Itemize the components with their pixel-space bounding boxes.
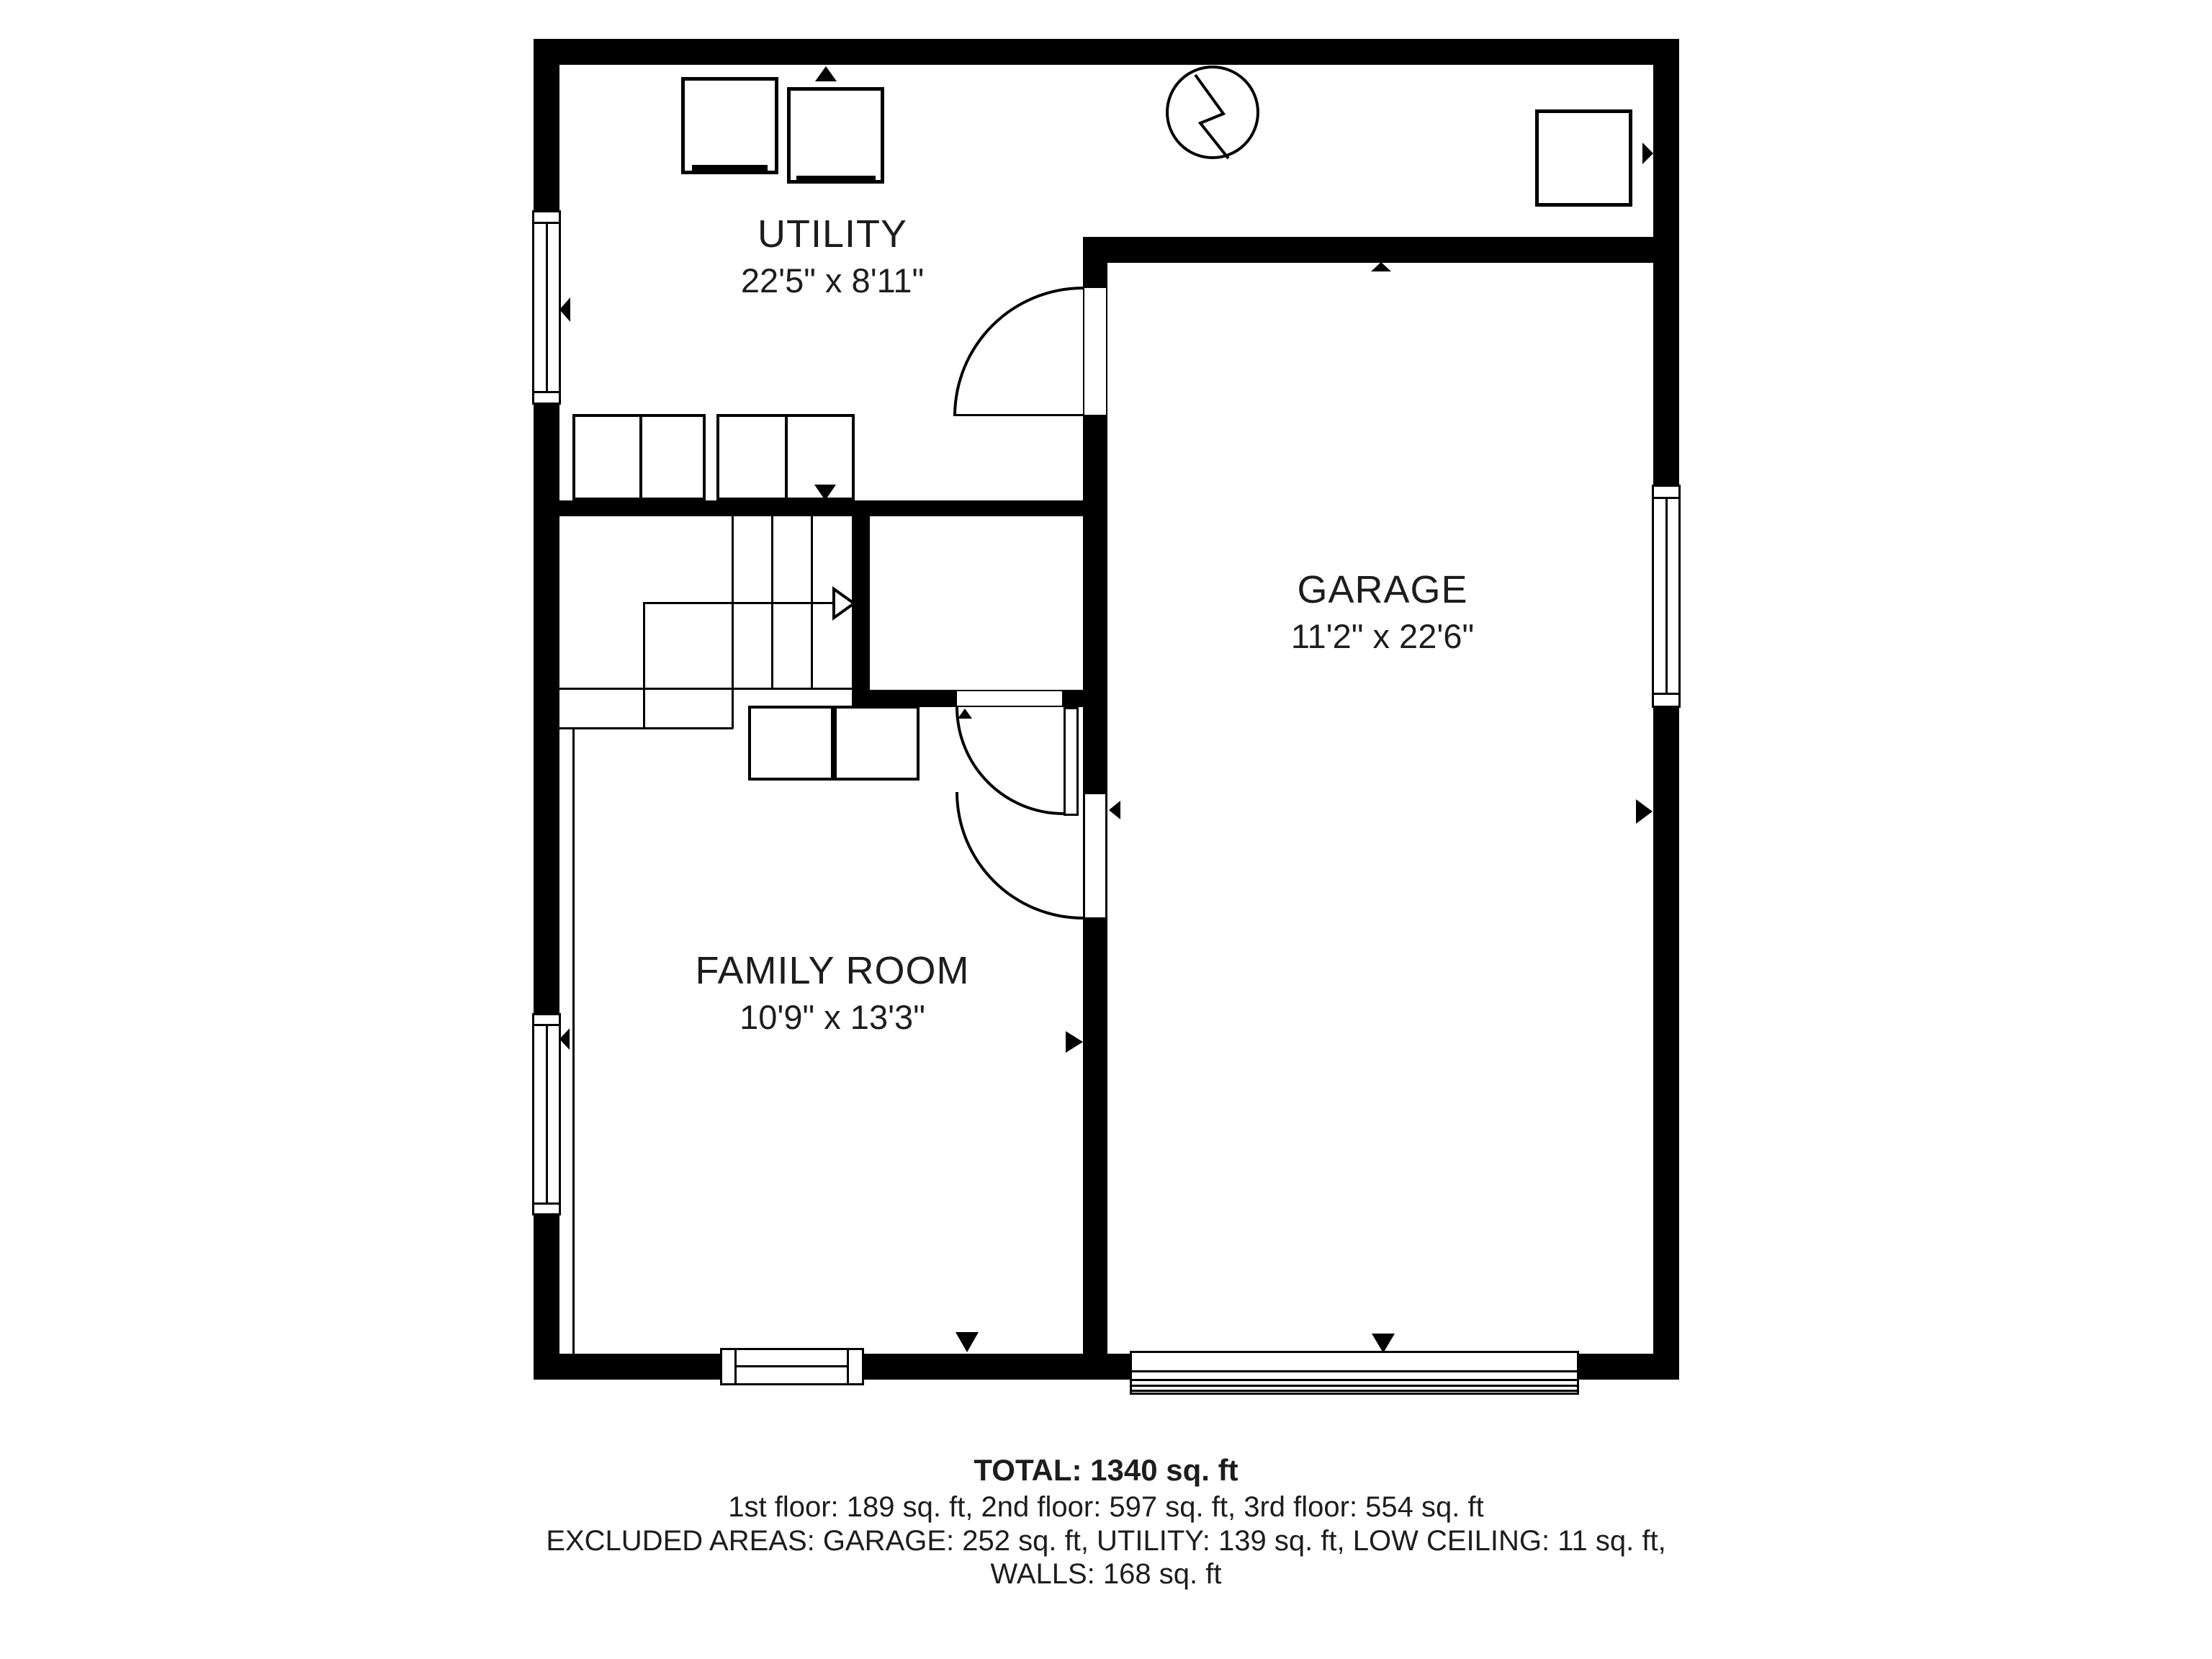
family-room-label: FAMILY ROOM <box>695 949 969 992</box>
marker-family-door-icon <box>958 709 972 719</box>
door-hall-family-opening <box>956 690 1064 707</box>
stair-arrowhead-icon <box>834 589 854 618</box>
marker-garage-right-icon <box>1636 799 1653 824</box>
stair-winder-divider <box>643 603 645 729</box>
marker-garage-top-icon <box>1371 262 1391 271</box>
washer-door-line <box>692 165 768 171</box>
wall-hall-bottom-right <box>1064 690 1083 707</box>
window-family-left-glass <box>546 1024 548 1205</box>
utility-room-label: UTILITY <box>757 212 907 256</box>
wall-right-lower <box>1653 708 1679 1380</box>
family-cabinet-2 <box>834 706 920 781</box>
low-ceiling-line <box>572 729 575 1354</box>
wall-bottom-left <box>534 1354 720 1380</box>
door-family-garage-swing-arc <box>956 792 1083 920</box>
summary-total: TOTAL: 1340 sq. ft <box>0 1454 2212 1487</box>
stair-landing-edge <box>559 727 733 729</box>
garage-door-line-1 <box>1132 1370 1577 1372</box>
stair-direction-line <box>643 602 834 604</box>
marker-garage-door-left-icon <box>1109 801 1120 819</box>
marker-family-bottom-icon <box>956 1332 979 1352</box>
utility-cabinet-2-divider <box>785 417 788 498</box>
garage-room-dimensions: 11'2" x 22'6" <box>1291 617 1474 656</box>
summary-floors: 1st floor: 189 sq. ft, 2nd floor: 597 sq… <box>0 1491 2212 1524</box>
wall-garage-left-lower <box>1083 920 1107 1354</box>
window-garage-right-glass <box>1665 497 1668 695</box>
wall-bottom-right <box>1579 1354 1679 1380</box>
family-cabinet-1 <box>748 706 834 781</box>
wall-left-upper <box>534 39 559 210</box>
door-utility-garage-leaf <box>953 414 1083 416</box>
utility-cabinet-1-divider <box>639 417 642 498</box>
summary-walls: WALLS: 168 sq. ft <box>0 1557 2212 1591</box>
window-family-bottom-jamb-right <box>847 1348 849 1385</box>
wall-top <box>534 39 1679 65</box>
window-utility-left-glass <box>546 222 548 393</box>
summary-excluded-areas: EXCLUDED AREAS: GARAGE: 252 sq. ft, UTIL… <box>0 1524 2212 1557</box>
utility-cabinet-1 <box>572 414 706 500</box>
wall-utility-bottom <box>559 500 1083 516</box>
marker-family-left-icon <box>559 1028 570 1050</box>
stair-bottom-edge <box>559 688 852 690</box>
wall-garage-left-stub <box>1083 237 1107 287</box>
dryer-icon <box>787 87 884 184</box>
wall-stair-divider <box>852 516 870 690</box>
door-utility-garage-swing-arc <box>953 287 1083 416</box>
marker-utility-top-icon <box>815 66 837 81</box>
utility-room-dimensions: 22'5" x 8'11" <box>741 261 924 300</box>
wall-garage-top <box>1083 237 1653 263</box>
floor-plan: UTILITY 22'5" x 8'11" GARAGE 11'2" x 22'… <box>0 0 2212 1659</box>
garage-door <box>1130 1351 1579 1395</box>
marker-utility-right-icon <box>1642 143 1653 164</box>
wall-right-upper <box>1653 39 1679 485</box>
door-utility-garage-opening <box>1083 287 1107 416</box>
garage-door-line-4 <box>1132 1390 1577 1392</box>
garage-door-line-3 <box>1132 1385 1577 1387</box>
family-room-dimensions: 10'9" x 13'3" <box>739 998 925 1037</box>
wall-left-middle <box>534 405 559 1013</box>
wall-bottom-middle <box>864 1354 1130 1380</box>
garage-door-line-2 <box>1132 1379 1577 1381</box>
marker-garage-bottom-icon <box>1372 1334 1395 1353</box>
electrical-meter-icon <box>1167 67 1258 158</box>
window-family-bottom-glass <box>737 1365 847 1367</box>
door-family-garage-leaf <box>1083 792 1107 920</box>
marker-family-right-icon <box>1066 1031 1083 1053</box>
wall-hall-bottom-left <box>852 690 956 707</box>
wall-garage-left-mid <box>1083 416 1107 792</box>
water-heater-icon <box>1535 109 1632 207</box>
marker-utility-left-icon <box>559 297 570 322</box>
stair-tread-1 <box>732 516 734 729</box>
marker-utility-stairs-down-icon <box>814 485 836 500</box>
washer-icon <box>681 77 778 174</box>
garage-room-label: GARAGE <box>1297 568 1467 611</box>
dryer-door-line <box>796 176 876 180</box>
lightning-bolt-icon <box>1195 75 1228 158</box>
